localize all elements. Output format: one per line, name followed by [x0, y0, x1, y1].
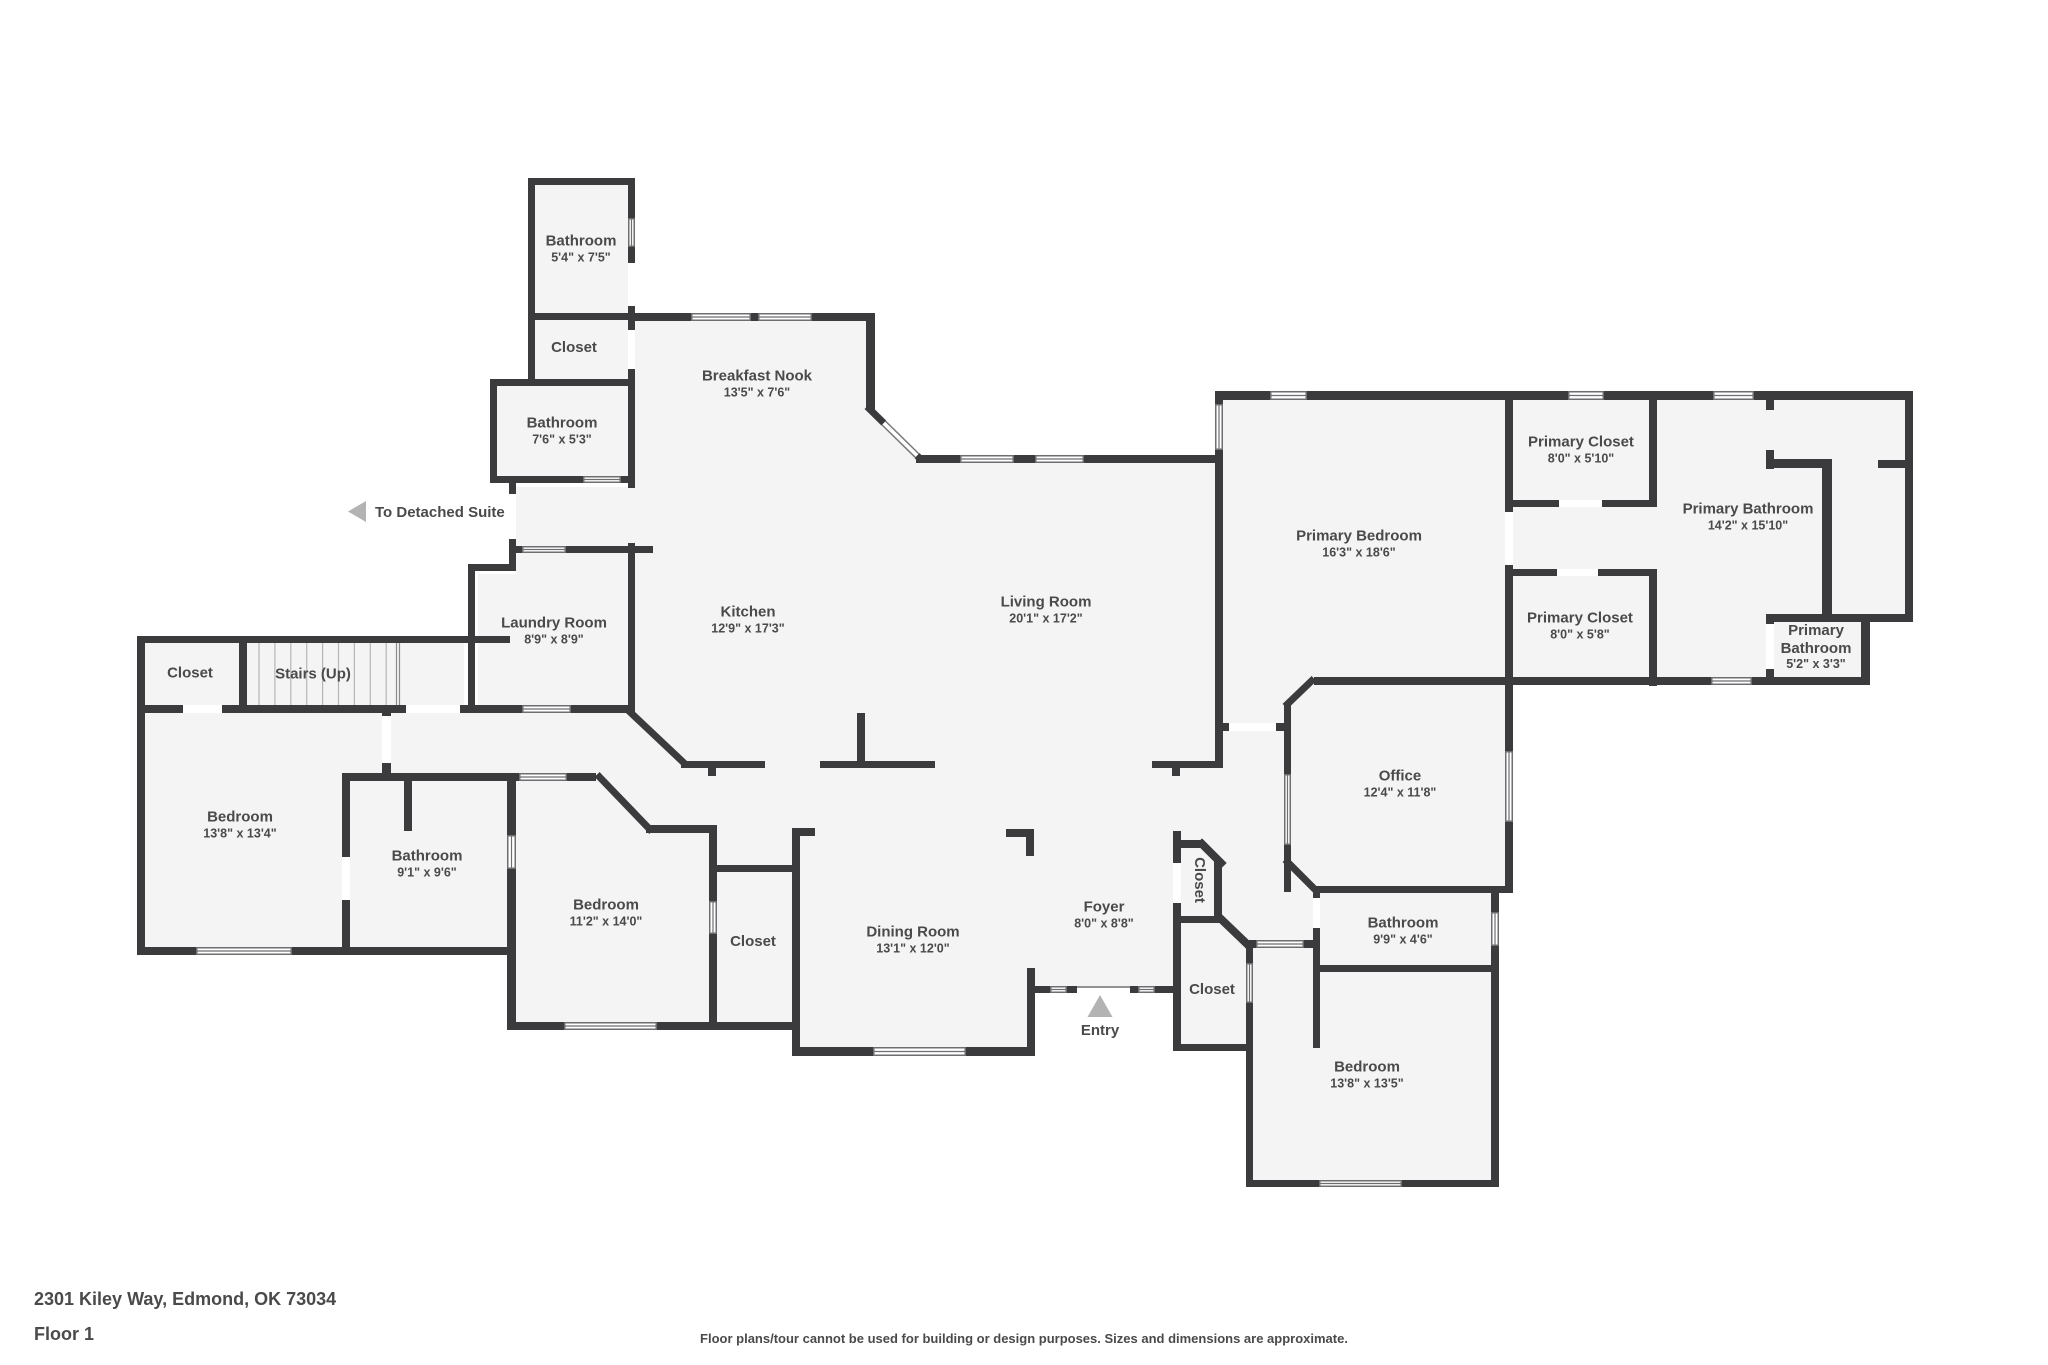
svg-text:8'9" x 8'9": 8'9" x 8'9" [524, 633, 584, 647]
svg-text:Bedroom: Bedroom [1334, 1059, 1400, 1076]
svg-text:Breakfast Nook: Breakfast Nook [702, 368, 813, 385]
svg-text:Entry: Entry [1081, 1022, 1120, 1039]
svg-text:12'9" x 17'3": 12'9" x 17'3" [711, 622, 784, 636]
svg-text:Office: Office [1379, 768, 1422, 785]
svg-text:Primary Closet: Primary Closet [1527, 610, 1633, 627]
svg-text:14'2" x 15'10": 14'2" x 15'10" [1708, 519, 1788, 533]
svg-text:2301 Kiley Way, Edmond, OK 730: 2301 Kiley Way, Edmond, OK 73034 [34, 1289, 336, 1309]
svg-text:11'2" x 14'0": 11'2" x 14'0" [570, 915, 643, 929]
svg-text:Primary Closet: Primary Closet [1528, 434, 1634, 451]
svg-text:Closet: Closet [1189, 981, 1235, 998]
svg-text:Floor 1: Floor 1 [34, 1324, 94, 1344]
svg-text:Dining Room: Dining Room [866, 924, 959, 941]
svg-text:13'8" x 13'4": 13'8" x 13'4" [203, 827, 276, 841]
svg-text:Bedroom: Bedroom [207, 809, 273, 826]
svg-text:7'6" x 5'3": 7'6" x 5'3" [532, 433, 592, 447]
svg-text:9'9" x 4'6": 9'9" x 4'6" [1373, 933, 1433, 947]
svg-text:8'0" x 5'8": 8'0" x 5'8" [1550, 628, 1610, 642]
svg-text:Closet: Closet [167, 665, 213, 682]
svg-text:Foyer: Foyer [1084, 899, 1125, 916]
svg-text:Bathroom: Bathroom [1368, 915, 1439, 932]
svg-text:Closet: Closet [1191, 857, 1208, 903]
svg-text:Closet: Closet [730, 933, 776, 950]
svg-text:Primary Bedroom: Primary Bedroom [1296, 528, 1422, 545]
svg-text:Floor plans/tour cannot be use: Floor plans/tour cannot be used for buil… [700, 1331, 1348, 1346]
svg-text:12'4" x 11'8": 12'4" x 11'8" [1364, 786, 1437, 800]
svg-text:8'0" x 5'10": 8'0" x 5'10" [1548, 452, 1615, 466]
svg-text:16'3" x 18'6": 16'3" x 18'6" [1322, 546, 1395, 560]
svg-text:Closet: Closet [551, 339, 597, 356]
svg-text:Bathroom: Bathroom [546, 233, 617, 250]
svg-text:8'0" x 8'8": 8'0" x 8'8" [1074, 917, 1134, 931]
svg-text:Bathroom: Bathroom [527, 415, 598, 432]
svg-text:Kitchen: Kitchen [720, 604, 775, 621]
svg-text:13'5" x 7'6": 13'5" x 7'6" [724, 386, 791, 400]
svg-text:Laundry Room: Laundry Room [501, 615, 607, 632]
svg-text:5'4" x 7'5": 5'4" x 7'5" [551, 251, 611, 265]
svg-text:Primary: Primary [1788, 622, 1845, 639]
svg-text:Living Room: Living Room [1001, 594, 1092, 611]
svg-text:Stairs (Up): Stairs (Up) [275, 666, 351, 683]
svg-text:Primary Bathroom: Primary Bathroom [1683, 501, 1814, 518]
svg-text:13'8" x 13'5": 13'8" x 13'5" [1330, 1077, 1403, 1091]
svg-text:20'1" x 17'2": 20'1" x 17'2" [1009, 612, 1082, 626]
svg-text:Bedroom: Bedroom [573, 897, 639, 914]
svg-text:Bathroom: Bathroom [392, 848, 463, 865]
svg-text:9'1" x 9'6": 9'1" x 9'6" [397, 866, 457, 880]
svg-text:To Detached Suite: To Detached Suite [375, 504, 505, 521]
svg-text:13'1" x 12'0": 13'1" x 12'0" [876, 942, 949, 956]
svg-text:5'2" x 3'3": 5'2" x 3'3" [1786, 657, 1846, 671]
svg-text:Bathroom: Bathroom [1781, 640, 1852, 657]
